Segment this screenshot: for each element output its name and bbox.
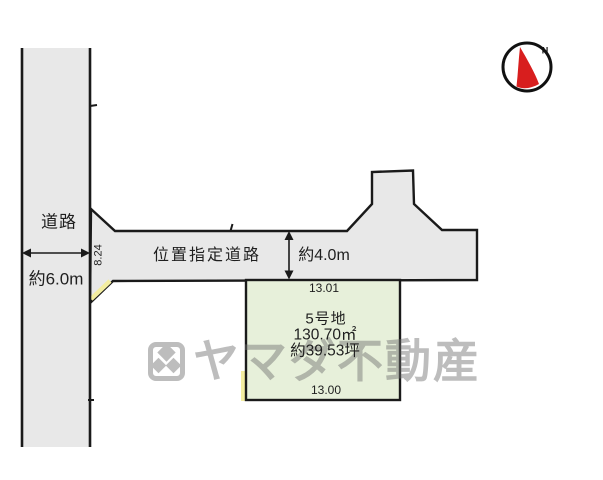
- plot-south-dimension: 13.00: [311, 384, 341, 396]
- plot-north-dimension: 13.01: [309, 282, 339, 294]
- plot-name-label: 5号地: [305, 312, 346, 327]
- main-road-width-label: 約6.0m: [29, 271, 84, 288]
- compass-north-label: N: [542, 47, 549, 56]
- designated-road-label: 位置指定道路: [153, 248, 261, 264]
- designated-road-width-label: 約4.0m: [298, 248, 350, 264]
- plot-area-sqm-label: 130.70㎡: [294, 327, 357, 343]
- main-road-edge-dimension: 8.24: [94, 244, 105, 265]
- lot-layout-diagram: 道路 約6.0m 8.24 位置指定道路 約4.0m N ヤマダ不動産 13.0…: [0, 0, 603, 480]
- plot-area-tsubo-label: 約39.53坪: [290, 343, 360, 359]
- main-road-label: 道路: [41, 214, 77, 231]
- diagram-canvas: [0, 0, 603, 480]
- boundary-tick-upper: [90, 105, 97, 106]
- main-road-shape: [22, 48, 90, 447]
